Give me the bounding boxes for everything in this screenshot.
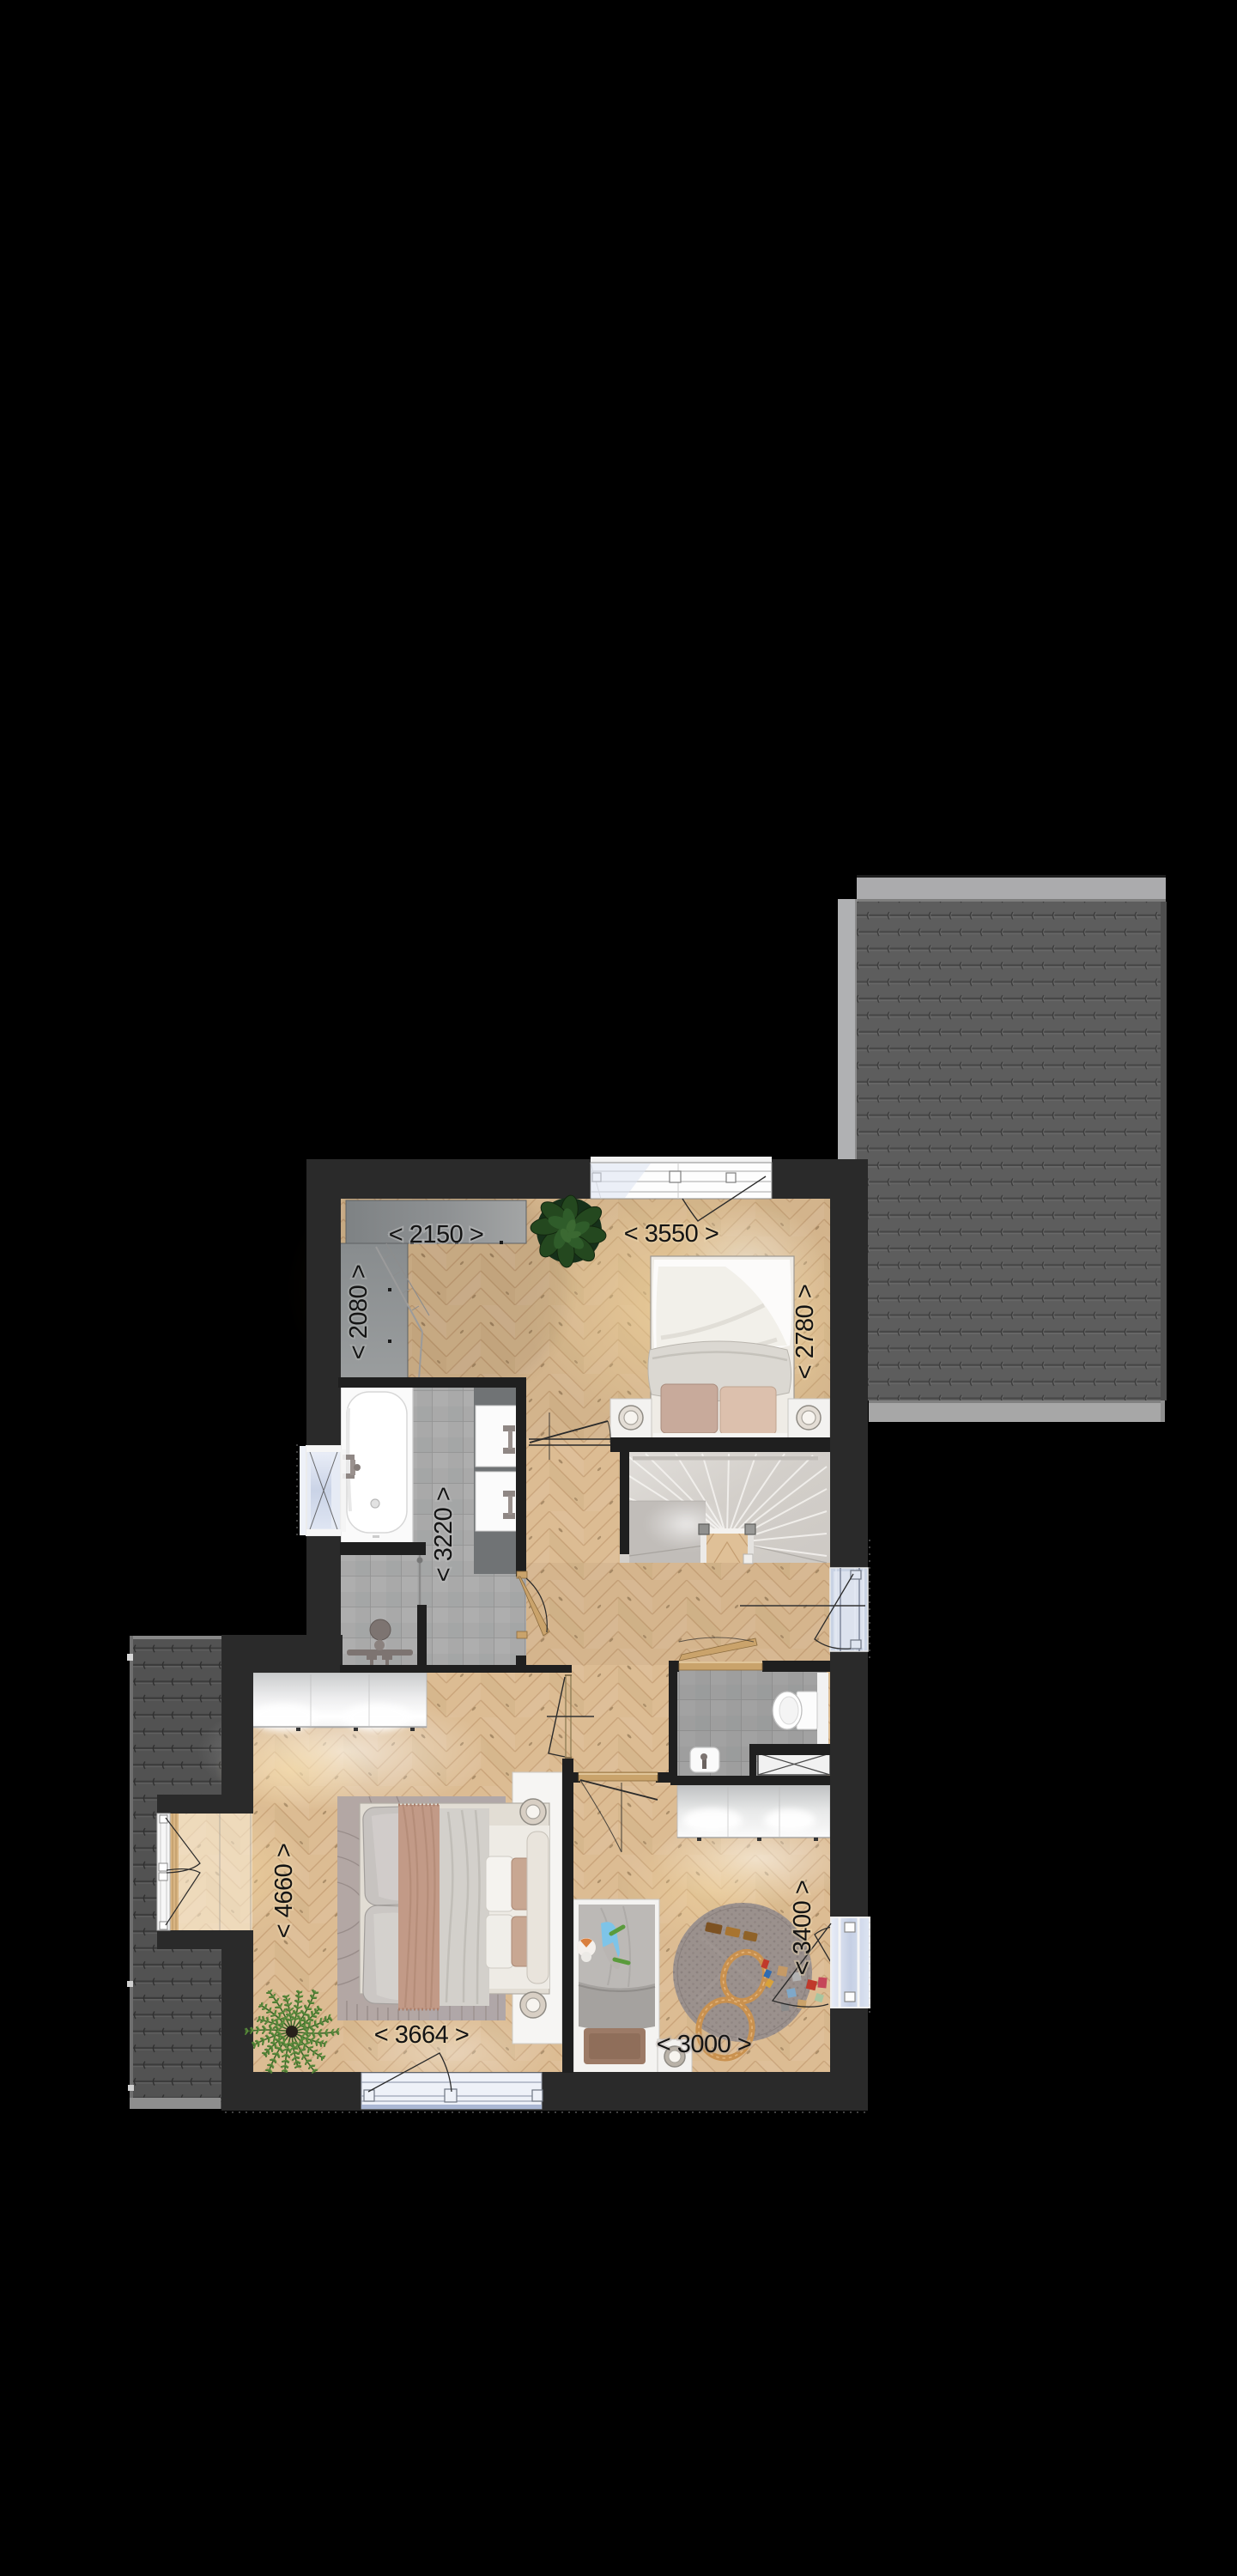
svg-text:< 2080 >: < 2080 > <box>345 1265 373 1360</box>
svg-text:< 3400 >: < 3400 > <box>789 1880 816 1976</box>
svg-text:< 3664 >: < 3664 > <box>374 2021 470 2049</box>
svg-text:< 3000 >: < 3000 > <box>657 2031 752 2058</box>
svg-text:< 3550 >: < 3550 > <box>624 1220 719 1248</box>
svg-text:< 3220 >: < 3220 > <box>430 1487 458 1583</box>
svg-text:< 4660 >: < 4660 > <box>270 1844 298 1939</box>
svg-text:< 2150 >: < 2150 > <box>389 1221 484 1249</box>
svg-text:< 2780 >: < 2780 > <box>791 1285 819 1380</box>
